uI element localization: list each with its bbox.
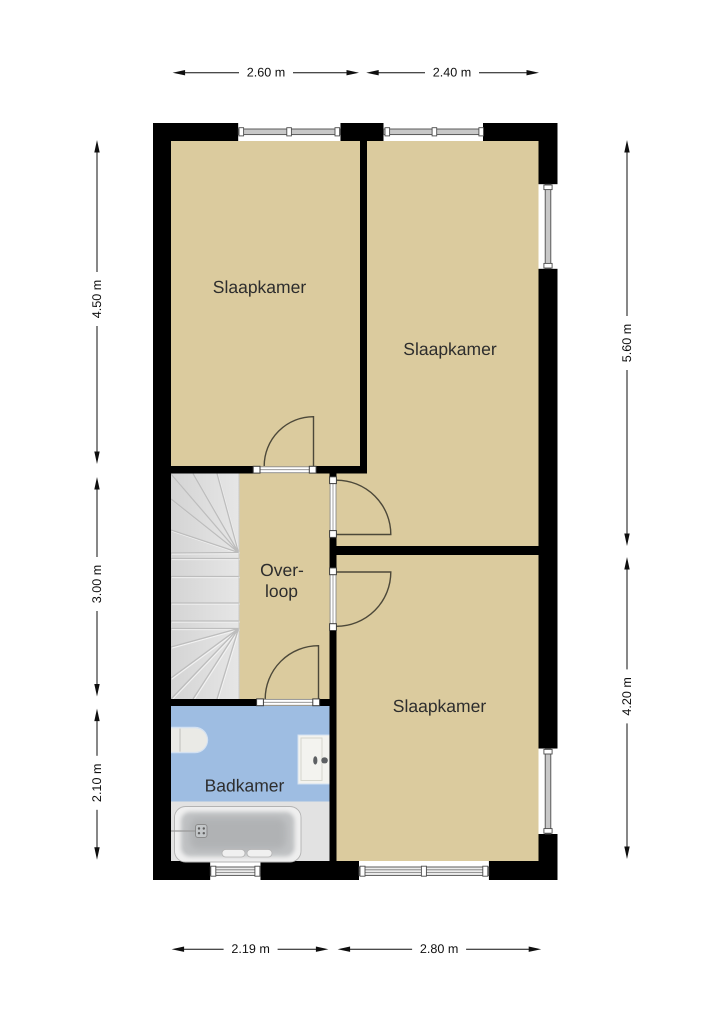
svg-text:Slaapkamer: Slaapkamer — [213, 277, 307, 297]
svg-text:3.00 m: 3.00 m — [90, 565, 104, 604]
svg-text:2.80 m: 2.80 m — [420, 942, 459, 956]
svg-text:4.20 m: 4.20 m — [620, 677, 634, 716]
svg-text:5.60 m: 5.60 m — [620, 324, 634, 363]
svg-text:2.40 m: 2.40 m — [433, 66, 472, 80]
svg-text:2.19 m: 2.19 m — [231, 942, 270, 956]
svg-text:Slaapkamer: Slaapkamer — [393, 696, 487, 716]
svg-text:Badkamer: Badkamer — [205, 776, 285, 796]
svg-text:4.50 m: 4.50 m — [90, 280, 104, 319]
svg-text:Over-: Over- — [260, 560, 304, 580]
svg-text:2.60 m: 2.60 m — [247, 66, 286, 80]
svg-text:Slaapkamer: Slaapkamer — [403, 339, 497, 359]
svg-text:loop: loop — [265, 581, 298, 601]
svg-text:2.10 m: 2.10 m — [90, 764, 104, 803]
